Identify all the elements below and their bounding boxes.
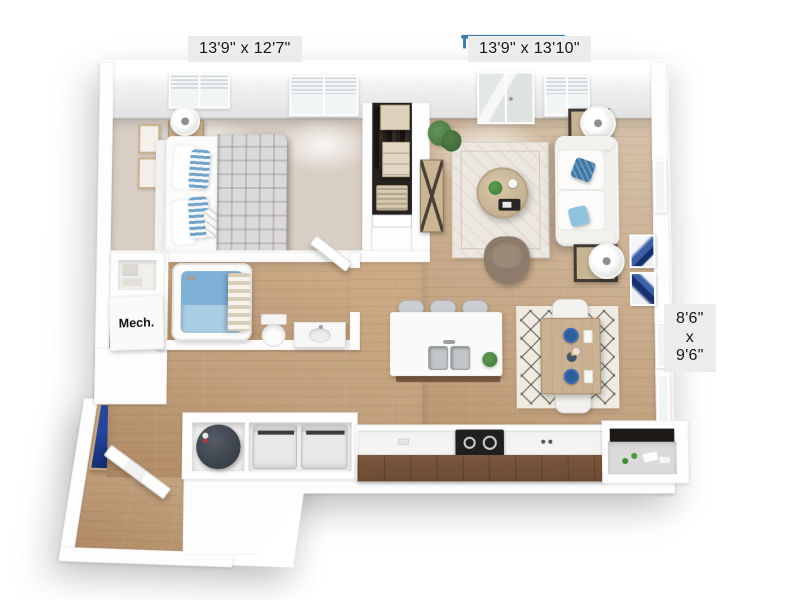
bedroom-window-2	[289, 76, 358, 117]
dining-table	[540, 318, 601, 394]
living-dimension-text: 13'9" x 13'10"	[479, 40, 580, 57]
towel-stack	[122, 278, 142, 286]
bedroom-dimension-label: 13'9" x 12'7"	[188, 36, 302, 62]
coffee-table	[476, 167, 528, 218]
armchair-cushion	[491, 240, 523, 268]
plant-leaves	[442, 130, 462, 152]
table-bowl	[508, 179, 517, 188]
balcony-dimension-width: 8'6"	[676, 310, 704, 329]
window-light-pool	[273, 118, 372, 173]
balcony-dimension-x: x	[676, 329, 704, 348]
living-wall-art-2	[630, 272, 656, 306]
nook-counter	[608, 442, 677, 475]
plate-blue-top	[563, 328, 578, 343]
bathroom-east-wall-lower	[350, 312, 360, 350]
burner	[464, 437, 476, 449]
table-tray	[498, 199, 520, 211]
linen-closet	[110, 252, 165, 298]
washer	[252, 425, 297, 470]
toilet	[260, 314, 288, 348]
water-heater	[196, 425, 241, 470]
centerpiece-flowers	[573, 348, 580, 355]
water-heater-closet	[192, 423, 245, 472]
bed	[154, 136, 287, 256]
bathtub	[171, 263, 252, 341]
balcony-door	[477, 72, 535, 125]
sink-faucet	[443, 340, 455, 344]
toilet-bowl	[262, 324, 286, 347]
counter-item	[398, 439, 409, 445]
dryer	[301, 425, 348, 470]
closet-west-wall	[362, 103, 372, 252]
kitchen-cabinets	[358, 455, 605, 481]
plan-3d-tilt: Mech.	[0, 6, 800, 600]
armchair	[484, 236, 530, 284]
sofa-arm-top	[557, 136, 615, 150]
island-plant	[482, 352, 497, 367]
closet-door	[372, 215, 412, 228]
vanity-sink	[309, 328, 331, 343]
sink-basin-right	[450, 346, 470, 370]
door-handle	[509, 97, 513, 101]
dryer-controls	[306, 431, 344, 435]
vanity-faucet	[319, 325, 323, 329]
bed-pillow-striped-1	[188, 149, 211, 190]
sofa-arm-bottom	[557, 230, 615, 244]
closet-dresser-2	[382, 142, 410, 177]
closet-south-stub	[372, 227, 412, 252]
napkin	[583, 330, 592, 343]
window-mullion	[323, 77, 325, 114]
living-dimension-label: 13'9" x 13'10"	[468, 36, 591, 62]
bedroom-dimension-text: 13'9" x 12'7"	[199, 40, 291, 57]
living-wall-art-1	[629, 234, 655, 268]
bathroom-vanity	[294, 322, 346, 348]
bed-blanket	[216, 134, 287, 258]
sofa	[555, 136, 620, 246]
fruit	[622, 458, 628, 464]
mech-closet: Mech.	[109, 295, 164, 351]
plate-blue-bottom	[564, 369, 579, 384]
potted-plant	[428, 120, 464, 161]
west-wall-wedge	[94, 348, 167, 404]
range-cooktop	[455, 430, 504, 456]
salt-pepper	[541, 440, 545, 444]
shower-curtain	[228, 273, 251, 331]
closet-dresser-1	[380, 105, 410, 130]
burner	[483, 436, 497, 450]
shower-fixture	[186, 275, 196, 280]
tray-card	[502, 202, 511, 208]
washer-controls	[258, 431, 294, 435]
balcony-dimension-depth: 9'6"	[676, 347, 704, 366]
sink-basin-left	[428, 346, 448, 370]
east-window-1	[653, 160, 667, 213]
heater-valve	[202, 433, 208, 439]
closet-interior	[372, 103, 412, 215]
bathroom-east-wall-upper	[350, 252, 360, 268]
door-mullion	[505, 74, 507, 123]
floorplan-canvas: Mech.	[0, 0, 800, 600]
mech-label: Mech.	[119, 315, 155, 330]
east-window-3	[656, 374, 670, 426]
dish-stack	[658, 456, 670, 464]
closet-basket	[376, 185, 408, 211]
console-table	[420, 160, 444, 233]
dish-stack	[641, 450, 659, 463]
kitchen-island	[390, 312, 503, 376]
bedroom-window-1	[168, 74, 230, 109]
table-plant	[488, 181, 502, 195]
balcony-dimension-label: 8'6" x 9'6"	[664, 304, 716, 372]
nook-appliance	[610, 429, 675, 442]
window-mullion	[198, 76, 200, 107]
towel-stack	[122, 264, 138, 274]
laundry-closet	[248, 423, 351, 472]
napkin	[584, 370, 593, 383]
living-lamp-bottom	[588, 243, 624, 279]
